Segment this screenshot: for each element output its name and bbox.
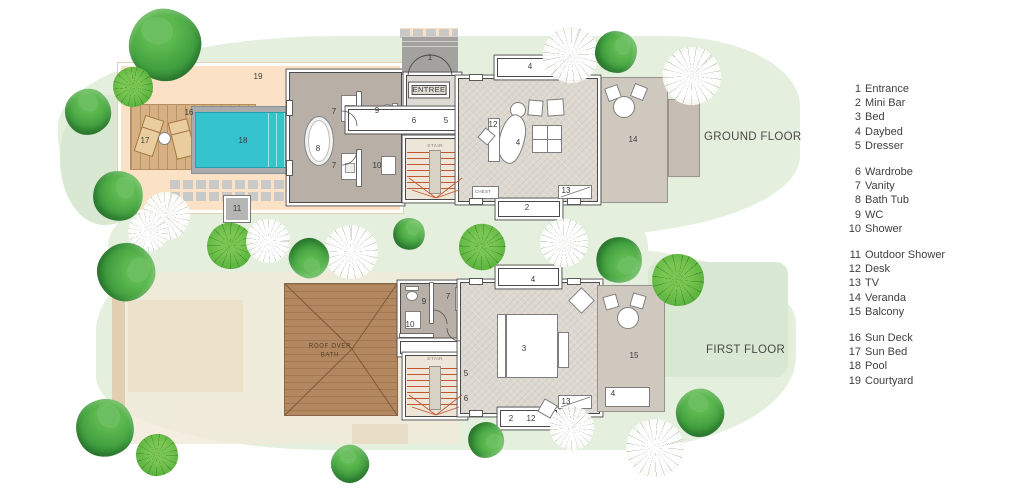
legend-item: 15Balcony [846,305,1006,319]
plan-label: 19 [254,73,263,81]
plan-label: 12 [527,415,536,423]
legend-number: 1 [846,82,861,96]
legend-group: 1Entrance2Mini Bar3Bed4Daybed5Dresser [846,82,1006,153]
legend-item: 1Entrance [846,82,1006,96]
plan-label: 9 [422,298,426,306]
legend-label: Mini Bar [865,96,905,110]
plan-label: 18 [239,137,248,145]
legend-number: 17 [846,345,861,359]
legend-item: 6Wardrobe [846,165,1006,179]
legend-number: 13 [846,276,861,290]
plan-label: 2 [525,204,529,212]
floor-plan-canvas: 19161718118779101ENTREE65STAIR1244CHEST1… [0,0,1010,495]
plan-label: 12 [489,121,498,129]
plan-label: 17 [141,137,150,145]
legend-label: Bed [865,110,885,124]
legend-label: Wardrobe [865,165,913,179]
legend-group: 6Wardrobe7Vanity8Bath Tub9WC10Shower [846,165,1006,236]
legend-item: 11Outdoor Shower [846,248,1006,262]
legend-label: Vanity [865,179,895,193]
legend-number: 16 [846,331,861,345]
plan-label: STAIR [427,357,443,362]
legend-item: 7Vanity [846,179,1006,193]
legend-item: 17Sun Bed [846,345,1006,359]
legend-label: Veranda [865,291,906,305]
plan-label: 10 [406,321,415,329]
legend-number: 8 [846,193,861,207]
legend-number: 12 [846,262,861,276]
plan-label: 5 [464,370,468,378]
legend-number: 5 [846,139,861,153]
legend-label: Dresser [865,139,904,153]
legend: 1Entrance2Mini Bar3Bed4Daybed5Dresser6Wa… [846,82,1006,400]
plan-label: 7 [332,162,336,170]
legend-item: 9WC [846,208,1006,222]
first-floor-title: FIRST FLOOR [706,344,785,356]
legend-label: Courtyard [865,374,913,388]
plan-label: 6 [412,117,416,125]
legend-label: WC [865,208,883,222]
legend-number: 11 [846,248,861,262]
legend-number: 19 [846,374,861,388]
legend-item: 5Dresser [846,139,1006,153]
legend-item: 3Bed [846,110,1006,124]
plan-label: 14 [629,136,638,144]
legend-item: 18Pool [846,359,1006,373]
plan-label: CHEST [475,190,491,194]
plan-label: 7 [332,108,336,116]
plan-label: 6 [464,395,468,403]
legend-number: 4 [846,125,861,139]
plan-label: 16 [185,109,194,117]
plan-label: 4 [516,139,520,147]
legend-label: TV [865,276,879,290]
plan-label: 13 [562,398,571,406]
legend-item: 2Mini Bar [846,96,1006,110]
legend-number: 15 [846,305,861,319]
legend-number: 10 [846,222,861,236]
legend-item: 13TV [846,276,1006,290]
legend-number: 9 [846,208,861,222]
legend-label: Desk [865,262,890,276]
legend-item: 8Bath Tub [846,193,1006,207]
plan-label: 5 [444,117,448,125]
plan-label: BATH [321,352,339,358]
plan-label: 4 [528,63,532,71]
legend-item: 14Veranda [846,291,1006,305]
plan-label: 9 [375,107,379,115]
legend-number: 6 [846,165,861,179]
plan-label: 1 [428,54,432,62]
plan-label: 13 [562,187,571,195]
plan-label: STAIR [427,144,443,149]
plan-label: 4 [611,390,615,398]
legend-item: 19Courtyard [846,374,1006,388]
plan-label: 8 [316,145,320,153]
plan-label: 3 [522,345,526,353]
legend-label: Entrance [865,82,909,96]
plan-label: 2 [509,415,513,423]
legend-item: 4Daybed [846,125,1006,139]
legend-number: 3 [846,110,861,124]
legend-label: Bath Tub [865,193,909,207]
plan-label: 7 [446,293,450,301]
legend-label: Outdoor Shower [865,248,945,262]
plan-label: ROOF OVER [309,343,351,349]
plan-label: 4 [531,276,535,284]
legend-item: 16Sun Deck [846,331,1006,345]
plan-label: 10 [373,162,382,170]
legend-item: 12Desk [846,262,1006,276]
legend-label: Pool [865,359,887,373]
legend-number: 14 [846,291,861,305]
legend-group: 11Outdoor Shower12Desk13TV14Veranda15Bal… [846,248,1006,319]
plan-label: ENTREE [412,85,447,95]
ground-floor-title: GROUND FLOOR [704,131,802,143]
legend-label: Sun Deck [865,331,913,345]
legend-label: Sun Bed [865,345,907,359]
legend-number: 2 [846,96,861,110]
plan-label: 15 [630,352,639,360]
legend-item: 10Shower [846,222,1006,236]
legend-number: 18 [846,359,861,373]
plan-label: 11 [233,205,241,213]
legend-group: 16Sun Deck17Sun Bed18Pool19Courtyard [846,331,1006,388]
legend-label: Daybed [865,125,903,139]
legend-label: Shower [865,222,902,236]
legend-number: 7 [846,179,861,193]
legend-label: Balcony [865,305,904,319]
